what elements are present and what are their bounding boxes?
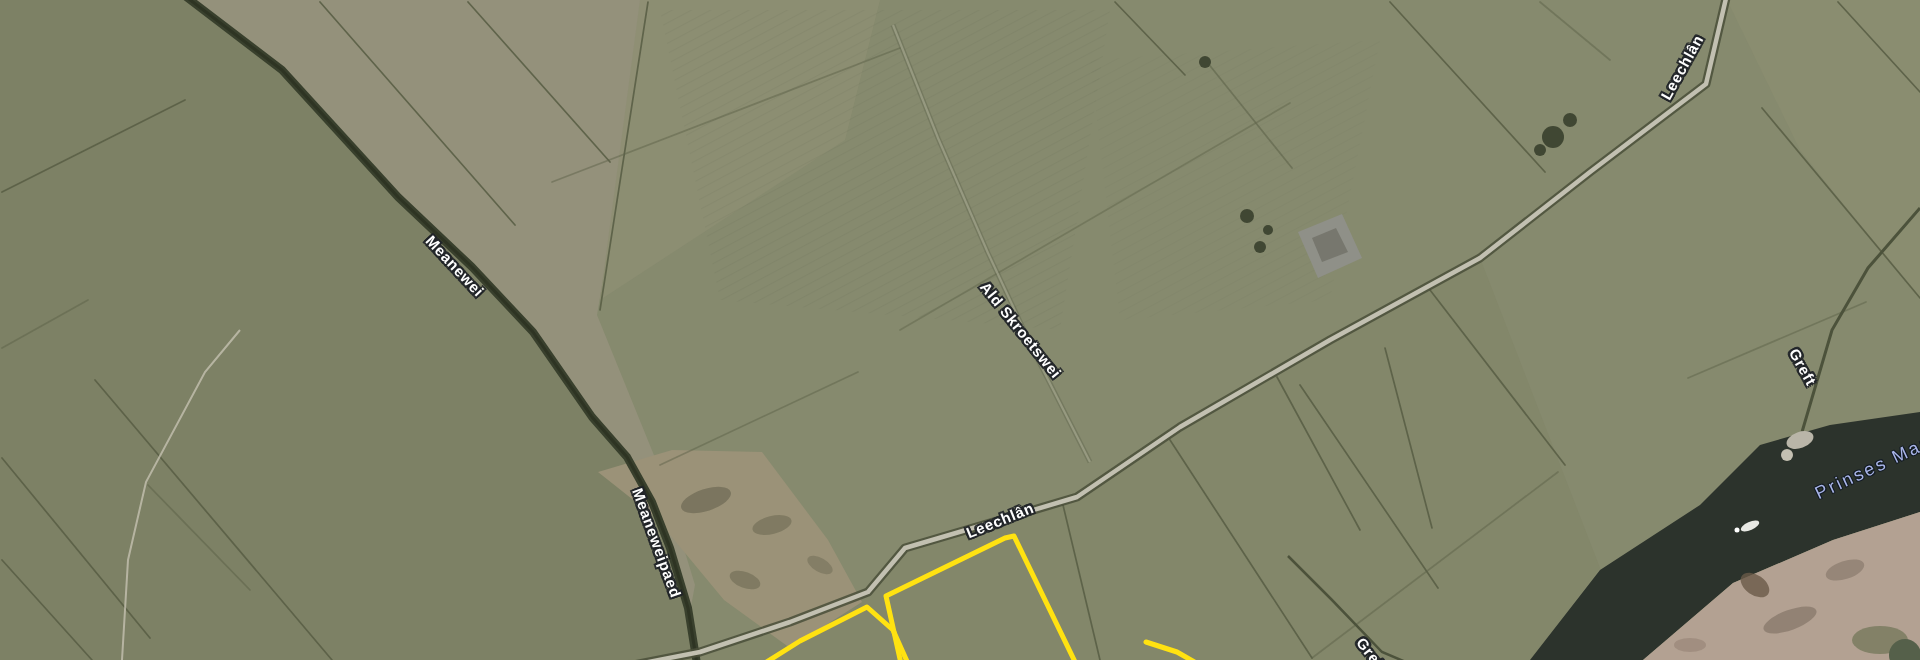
map-art	[0, 0, 1920, 660]
satellite-map[interactable]: MeaneweiMeaneweipaedAld SkroetsweiLeechl…	[0, 0, 1920, 660]
inlet-beach	[1781, 449, 1793, 461]
plough-stripes	[660, 10, 1110, 330]
